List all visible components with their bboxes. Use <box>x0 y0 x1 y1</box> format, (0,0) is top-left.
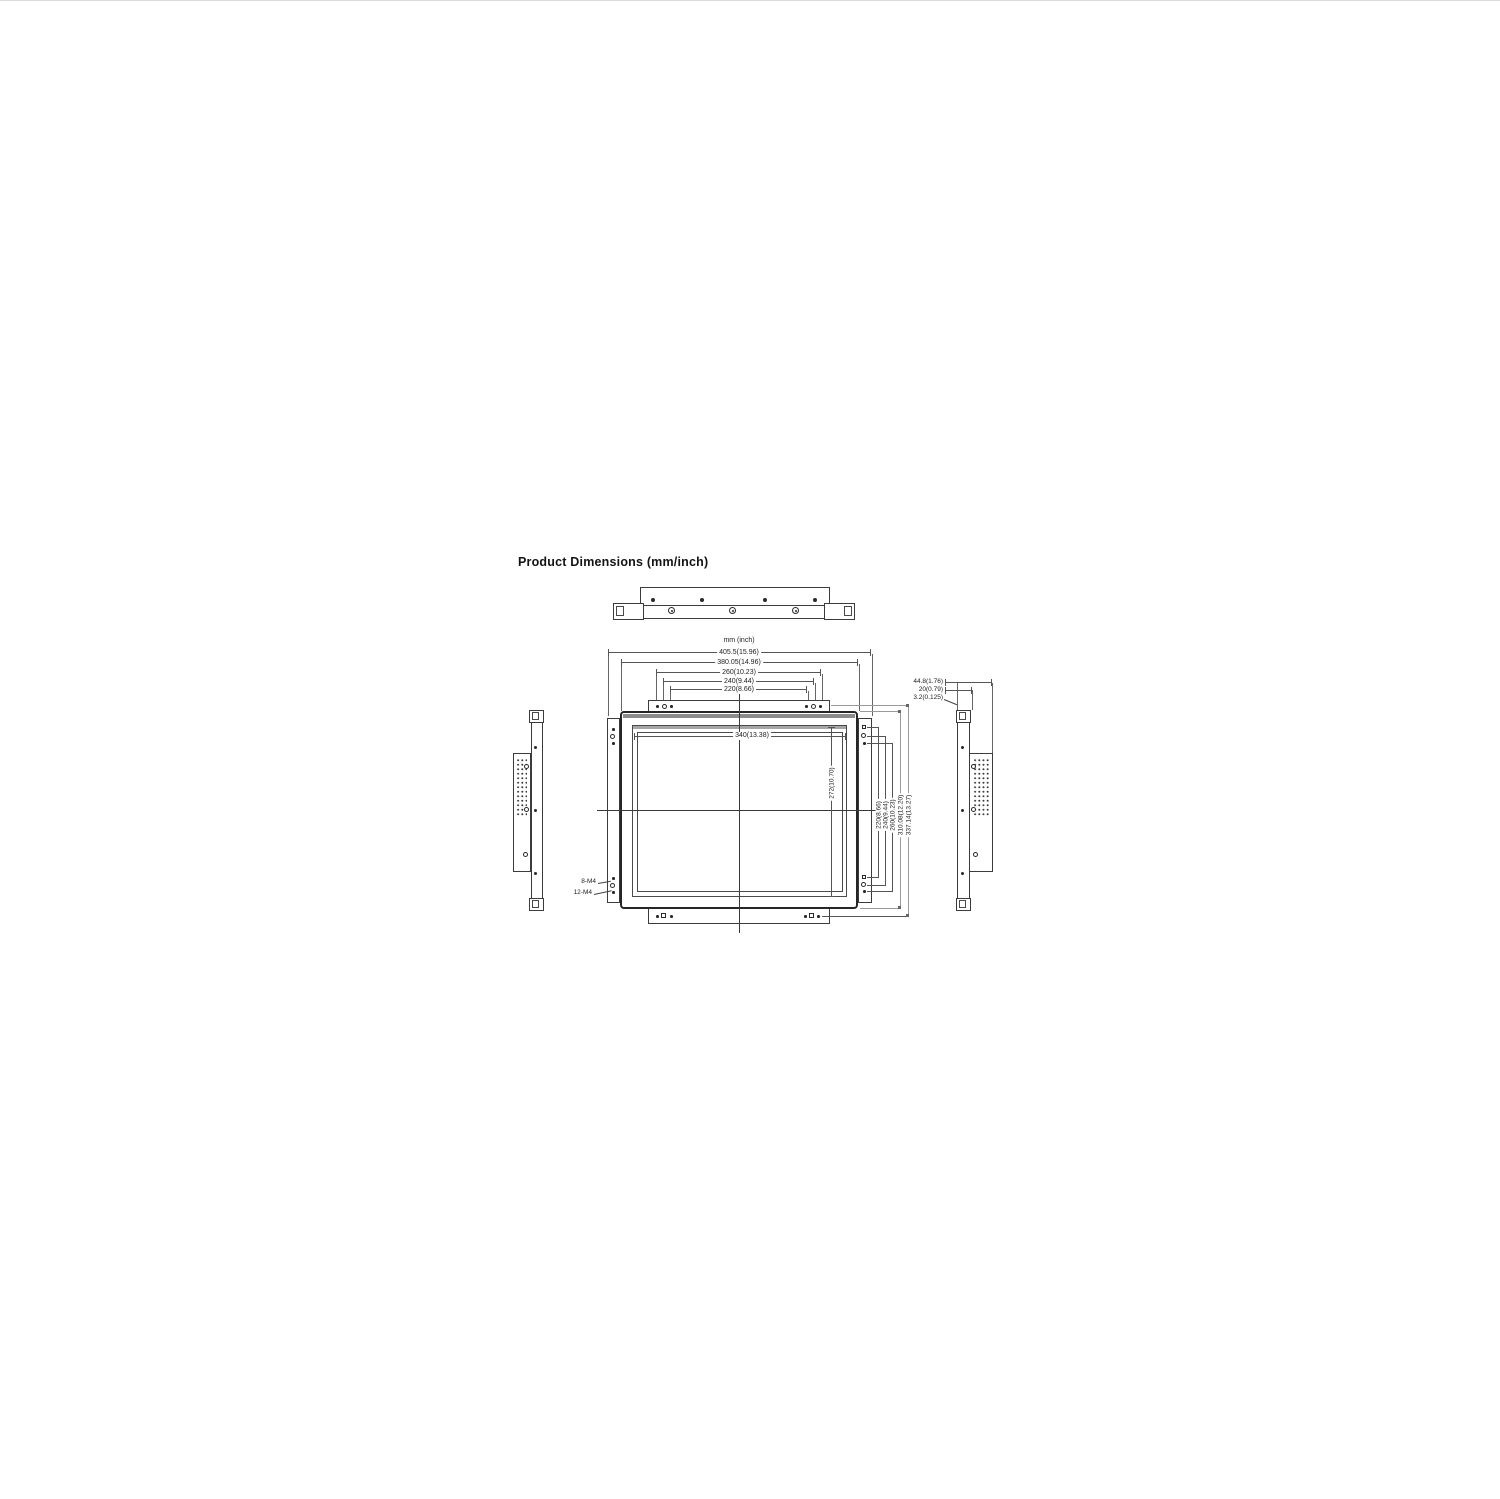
hole-callout-12-m4: 12-M4 <box>568 889 592 897</box>
tab-hole <box>805 705 808 708</box>
screw <box>971 807 976 812</box>
unit-note: mm (inch) <box>721 637 756 645</box>
dim-connector-overall-height <box>831 705 909 706</box>
tab-hole <box>817 915 820 918</box>
centerline-horizontal <box>597 810 876 811</box>
screw-dot <box>534 872 537 875</box>
flange-hole <box>861 733 866 738</box>
side-body-bar <box>531 711 543 910</box>
flange-hole <box>612 877 615 880</box>
dim-label-overall-width: 405.5(15.96) <box>717 649 761 657</box>
hole-callout-8-m4: 8-M4 <box>572 878 596 886</box>
screw-dot <box>961 746 964 749</box>
dim-label-frame-height: 310.08(12.20) <box>898 793 905 837</box>
screw <box>523 852 528 857</box>
screw-dot <box>961 809 964 812</box>
tab-hole <box>670 915 673 918</box>
tab-hole-square <box>661 913 666 918</box>
screw-dot <box>534 746 537 749</box>
tab-hole <box>662 704 667 709</box>
dim-label-hole-span-240: 240(9.44) <box>722 678 756 686</box>
screw <box>524 764 529 769</box>
flange-hole <box>863 890 866 893</box>
page-title: Product Dimensions (mm/inch) <box>518 555 708 569</box>
dim-label-hole-span-220: 220(8.66) <box>722 686 756 694</box>
flange-hole <box>863 742 866 745</box>
tab-hole <box>656 915 659 918</box>
dim-connector <box>867 736 886 737</box>
dim-label-glass-thickness: 3.2(0.125) <box>902 694 943 702</box>
flange-hole <box>610 734 615 739</box>
dim-connector-frame-height <box>860 711 901 712</box>
dim-connector <box>867 891 893 892</box>
tab-hole <box>670 705 673 708</box>
screw-hole-center <box>732 610 734 612</box>
dim-label-frame-width: 380.05(14.96) <box>715 659 763 667</box>
dim-label-front-depth: 20(0.79) <box>906 686 943 694</box>
screw <box>971 764 976 769</box>
dim-label-overall-depth: 44.8(1.76) <box>906 678 943 686</box>
screw <box>973 852 978 857</box>
tab-hole-square <box>809 913 814 918</box>
flange-hole <box>612 891 615 894</box>
end-cap-bottom-detail <box>959 900 966 908</box>
flange-hole <box>610 883 615 888</box>
extension-line <box>957 683 958 710</box>
tab-hole <box>656 705 659 708</box>
top-view-end-cap-left-detail <box>616 606 624 616</box>
dim-marker <box>906 704 909 707</box>
flange-hole-square <box>862 875 866 879</box>
mounting-hole <box>700 598 704 602</box>
tab-hole <box>804 915 807 918</box>
screw-dot <box>961 872 964 875</box>
callout-leader <box>944 699 957 705</box>
flange-hole <box>612 728 615 731</box>
dim-label-overall-height: 337.14(13.27) <box>906 793 913 837</box>
dim-marker <box>898 710 901 713</box>
dim-line-overall-depth <box>945 682 992 683</box>
extension-line <box>992 683 993 753</box>
top-view-end-cap-right-detail <box>844 606 852 616</box>
dim-connector-overall-height <box>822 916 909 917</box>
end-cap-bottom-detail <box>532 900 539 908</box>
flange-hole <box>861 882 866 887</box>
dim-label-height-260: 260(10.23) <box>890 797 897 832</box>
mounting-hole <box>763 598 767 602</box>
dim-label-hole-span-260: 260(10.23) <box>720 669 758 677</box>
dim-connector-frame-height <box>860 908 901 909</box>
screw-dot <box>534 809 537 812</box>
dim-label-active-width: 340(13.38) <box>733 732 771 740</box>
dim-line-active-height <box>831 727 832 897</box>
dim-connector <box>867 885 886 886</box>
mounting-hole <box>813 598 817 602</box>
top-view-bracket-plate <box>640 587 830 607</box>
dimension-drawing-page: Product Dimensions (mm/inch) mm (inch) 4… <box>0 0 1500 1499</box>
mounting-hole <box>651 598 655 602</box>
tab-hole <box>811 704 816 709</box>
flange-hole <box>612 742 615 745</box>
tab-hole <box>819 705 822 708</box>
extension-line <box>972 690 973 710</box>
centerline-vertical <box>739 694 740 933</box>
page-top-border <box>0 0 1500 1</box>
dim-marker <box>906 914 909 917</box>
dim-label-height-220: 220(8.66) <box>876 799 883 831</box>
dim-line-front-depth <box>945 690 972 691</box>
end-cap-top-detail <box>532 712 539 720</box>
end-cap-top-detail <box>959 712 966 720</box>
flange-hole-square <box>862 725 866 729</box>
screw-hole-center <box>795 610 797 612</box>
dim-marker <box>898 906 901 909</box>
screw-hole-center <box>671 610 673 612</box>
dim-label-height-240: 240(9.44) <box>883 799 890 831</box>
dim-connector <box>867 743 893 744</box>
screw <box>524 807 529 812</box>
active-area <box>637 732 843 892</box>
dim-label-active-height: 272(10.70) <box>829 765 836 800</box>
